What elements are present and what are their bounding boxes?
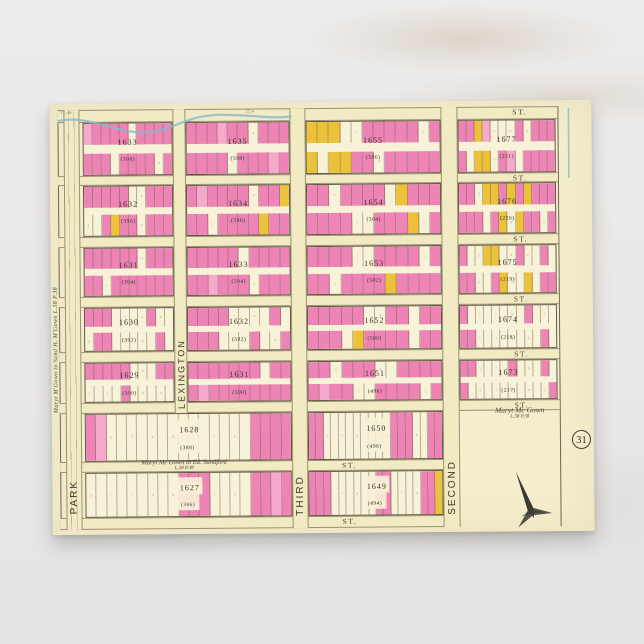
block-lot [341,274,352,294]
block-lot [363,213,374,234]
block-lot [516,305,524,323]
block-lot [461,383,469,399]
avenue-label: THIRD [295,476,306,517]
block-lot: 4 [270,332,280,350]
block-lot [164,215,172,236]
block-lot [483,121,491,142]
block-lot-row: 4 [84,248,172,268]
block-lot [516,212,524,233]
block-lot [319,274,330,294]
block-lot [261,384,271,400]
block-lot: 4 [375,306,386,324]
block-lot [187,214,197,235]
block-lot [281,307,290,325]
map-block: 7444741630(392) [84,307,174,352]
block-lot [166,363,174,379]
block-lot-row: 54 [308,361,441,378]
block-lot [270,214,280,235]
block-lot [147,276,156,296]
block-lot [408,273,419,293]
block-lot-row: 4 [187,185,289,206]
block-lot [318,122,329,143]
block-lot: 7 [121,309,130,327]
block-lot [386,331,397,349]
block-lot [251,472,262,515]
block-lot [147,248,156,268]
block-lot [282,472,292,515]
block-lot [138,473,149,516]
block-lot [308,331,319,349]
block-lot [85,309,94,327]
block-lot [110,153,119,174]
map-block: 445441629(390) [84,362,174,403]
block-lot [396,151,407,172]
block-lot-row: 4 [307,151,440,173]
block-lot [129,215,138,236]
map-block: 451631(394) [83,247,173,297]
block-lot [111,187,120,208]
block-lot [492,273,500,293]
block-lot [164,186,172,207]
block-lot [261,472,272,515]
block-lot [198,275,208,295]
map-block: 45744741627(386) [85,471,292,518]
block-lot [387,383,398,399]
block-lot-row: 5744 [460,330,556,348]
block-lot [198,248,208,268]
block-lot-row: 7 [187,152,289,174]
block-lot [475,150,483,171]
block-lot [259,152,269,173]
block-lot-row: 75 [307,212,440,234]
map-block: 57445741628(388) [85,412,292,462]
block-lot [198,332,208,350]
block-lot [94,364,103,380]
block-lot: 5 [419,246,430,266]
block-lot [199,473,210,516]
block-lot: 4 [86,474,97,517]
block-lot [531,120,539,141]
block-lot [259,185,269,206]
block-lot-row: 744 [85,308,173,326]
block-lot [229,275,239,295]
block-lot-row [189,384,291,401]
block-lot [260,275,270,295]
block-lot [398,361,409,377]
block-lot: 5 [330,274,341,294]
block-lot [129,308,138,326]
block-lot [396,184,407,205]
block-lot [241,473,252,516]
block-lot: 4 [139,363,148,379]
block-lot [230,363,240,379]
block-lot [281,332,290,350]
block-lot-row: 45 [459,212,555,233]
block-lot [111,276,120,296]
block-lot [468,361,476,377]
block-lot: 7 [352,247,363,267]
block-lot [485,383,493,399]
block-lot [238,152,248,173]
block-lot [353,362,364,378]
block-lot [158,473,169,516]
block-lot: 4 [148,414,159,460]
block-lot [281,413,291,459]
block-lot [279,152,288,173]
estate-deed-ref: L.38 P.38 [470,414,570,421]
block-lot: 5 [189,414,200,460]
block-lot [407,151,418,172]
block-lot [329,151,340,172]
block-lot [364,331,375,349]
block-lot [199,414,210,460]
block-lot-row: 474 [85,333,173,351]
block-lot [409,361,420,377]
block-lot [340,151,351,172]
block-lot [165,308,173,326]
block-lot [524,212,532,233]
block-lot [318,213,329,234]
block-lot [102,153,111,174]
block-lot [373,122,384,143]
block-lot [248,152,258,173]
block-lot [271,413,282,459]
block-lot [430,246,440,266]
block-lot-row: 544 [459,245,555,265]
block-lot [189,385,199,401]
block-lot [340,185,351,206]
block-lot [484,306,492,324]
block-lot [468,273,476,293]
block-lot [137,123,146,144]
block-lot [483,150,491,171]
avenue-label: PARK [69,479,80,514]
block-lot: 7 [228,152,238,173]
block-lot: 5 [477,361,485,377]
block-lot [165,248,173,268]
block-lot [129,276,138,296]
block-lot [320,362,331,378]
block-lot: 4 [509,330,517,348]
block-lot [374,246,385,266]
block-lot: 5 [419,213,430,234]
block-lot [269,185,279,206]
block-lot [270,275,280,295]
block-lot-row: 574 [460,360,556,377]
block-lot [307,185,318,206]
block-lot: 7 [493,361,501,377]
block-lot [148,363,157,379]
block-lot [307,247,318,267]
block-lot: 4 [248,122,258,143]
block-lot [128,186,137,207]
block-lot: 4 [86,386,95,402]
block-lot [199,385,209,401]
block-lot [549,272,556,292]
block-lot [281,384,290,400]
block-lot: 5 [476,330,484,348]
margin-deed-text: Maryt M'Gown to Saml H. M'Gown L.38 P.38 [52,242,64,457]
block-lot [218,248,228,268]
block-lot [147,308,156,326]
block-lot [352,274,363,294]
block-lot [280,247,289,267]
block-lot [239,275,249,295]
block-lot-row: 75 [306,121,439,143]
block-lot: 4 [375,361,386,377]
block-lot [385,151,396,172]
block-lot [155,186,164,207]
block-lot: 5 [106,415,117,461]
block-lot [188,332,198,350]
block-lot [119,124,128,145]
block-lot [467,184,475,205]
block-lot [500,306,508,324]
postcard: ST.ST.ST.ST.ST.ST.ST.ST.PARKLEXINGTONTHI… [49,100,594,535]
street-label: ST. [513,234,528,244]
block-lot [525,305,533,323]
block-lot [533,305,541,323]
block-lot [549,360,556,376]
block-lot [436,471,443,514]
block-lot [549,382,556,398]
block-lot-row: 4 [188,275,290,296]
block-lot [507,183,515,204]
block-lot [156,333,165,351]
block-lot [501,361,509,377]
block-lot: 7 [493,383,501,399]
block-lot [209,363,219,379]
block-lot: 4 [230,473,241,516]
block-lot [239,214,249,235]
block-lot [259,214,269,235]
block-lot [228,186,238,207]
block-lot: 4 [507,120,515,141]
block-lot [270,247,280,267]
block-lot: 7 [491,121,499,142]
block-lot: 4 [525,382,533,398]
block-lot [374,213,385,234]
block-lot-row: 5 [459,183,555,204]
block-lot [353,307,364,325]
avenue-label: LEXINGTON [176,339,187,409]
block-lot: 4 [508,212,516,233]
map-block: 41652(500) [307,305,442,350]
block-lot [188,308,198,326]
block-lot: 7 [229,332,239,350]
block-lot [188,275,198,295]
block-lot [376,384,387,400]
block-lot: 4 [138,215,147,236]
block-lot [541,360,549,376]
map-block: 74471677(221) [457,119,555,173]
block-lot: 7 [127,473,138,516]
block-lot [250,385,260,401]
block-lot-row [187,247,289,268]
block-lot [363,247,374,267]
block-lot [330,307,341,325]
block-lot [364,362,375,378]
block-lot [460,273,468,293]
block-lot-row: 74 [188,332,290,350]
block-lot [198,308,208,326]
map-block: 74741632(592) [187,306,291,351]
block-lot-row: 5 [308,273,441,294]
block-lot-row: 57445 [461,382,557,399]
block-lot-row: 5 [187,214,289,235]
avenue-label: SECOND [446,460,457,515]
block-lot [138,276,147,296]
block-lot [219,275,229,295]
block-lot: 4 [524,245,532,265]
block-lot [307,213,318,234]
block-lot [102,215,111,236]
block-lot [166,385,174,401]
block-lot [467,121,475,142]
block-lot [351,151,362,172]
block-lot: 5 [541,305,549,323]
block-lot [469,383,477,399]
block-lot [219,363,229,379]
block-lot [532,273,540,293]
block-lot [318,152,329,173]
block-lot [319,307,330,325]
block-lot [308,274,319,294]
block-lot [197,123,207,144]
block-lot [84,187,93,208]
block-lot-row: 75 [309,383,442,400]
block-lot [523,150,531,171]
block-lot-row: 4 [84,186,172,207]
block-lot: 7 [352,213,363,234]
block-lot [240,414,251,460]
block-lot: 4 [137,186,146,207]
block-lot [540,272,548,292]
block-lot [117,415,128,461]
block-lot: 4 [148,473,159,516]
estate-label: Maryt Mc Gown L.38 P.38 [470,406,570,421]
edge-number: 11.46 [60,111,71,116]
map-block: 5744541650(496) [308,411,443,460]
block-lot [516,245,524,265]
block-lot [260,332,270,350]
block-lot [484,246,492,266]
block-lot [93,215,102,236]
block-lot [164,123,172,144]
map-block: 41633(594) [186,246,290,296]
block-lot [120,215,129,236]
block-lot [279,122,288,143]
block-lot [331,384,342,400]
block-lot [250,362,260,378]
block-lot: 5 [208,214,218,235]
block-lot [219,332,229,350]
block-lot [397,331,408,349]
map-block: 451634(596) [186,184,290,236]
sandford-deed-text: Maryt Mc Gown to Ed. Sandford L.38 P.38 [114,459,254,472]
block-lot [420,331,431,349]
block-lot [342,384,353,400]
block-lot [188,363,198,379]
map-block: 1631(590) [187,361,291,402]
block-lot [119,153,128,174]
block-lot [386,274,397,294]
block-lot [430,212,440,233]
map-block: 7551653(502) [306,245,441,295]
block-lot [548,183,555,204]
block-lot [307,152,318,173]
block-lot: 7 [353,384,364,400]
street-label: ST. [514,349,529,359]
block-lot [468,246,476,266]
block-lot: 7 [492,330,500,348]
block-lot [220,473,231,516]
block-lot [467,150,475,171]
block-lot [269,152,279,173]
block-lot [330,213,341,234]
block-lot [330,331,341,349]
block-lot [240,385,250,401]
block-lot: 4 [156,308,165,326]
block-lot [197,186,207,207]
block-lot [85,364,94,380]
block-lot [499,150,507,171]
block-lot [515,120,523,141]
block-lot-row: 4544 [86,385,174,402]
block-lot [430,184,440,205]
block-lot [509,360,517,376]
block-lot [341,247,352,267]
block-lot [251,413,262,459]
block-lot [137,153,146,174]
block-lot [532,212,540,233]
block-lot [93,249,102,269]
block-lot [491,184,499,205]
block-lot [460,306,468,324]
block-lot: 7 [351,122,362,143]
block-lot-row [83,123,171,145]
block-lot [250,332,260,350]
block-lot [499,184,507,205]
block-lot [130,385,139,401]
block-lot-row: 7 [459,150,555,172]
block-lot [84,249,93,269]
map-block: 54751651(498) [307,360,442,401]
map-block: 5451676(220) [458,182,556,234]
block-lot [386,246,397,266]
block-lot [398,383,409,399]
block-lot [517,382,525,398]
block-lot [431,306,441,324]
block-lot [409,331,420,349]
block-lot [459,212,467,233]
block-lot: 7 [492,306,500,324]
block-lot: 4 [139,333,148,351]
block-lot-row: 44 [84,215,172,236]
block-lot [483,212,491,233]
block-lot [103,364,112,380]
block-lot: 5 [541,382,549,398]
block-lot [533,360,541,376]
block-lot: 4 [230,414,241,460]
block-lot [517,360,525,376]
block-lot [419,273,430,293]
block-lot [93,187,102,208]
block-lot [320,384,331,400]
map-block: 5751654(504) [306,183,441,235]
block-lot [146,153,155,174]
block-lot [179,473,190,516]
